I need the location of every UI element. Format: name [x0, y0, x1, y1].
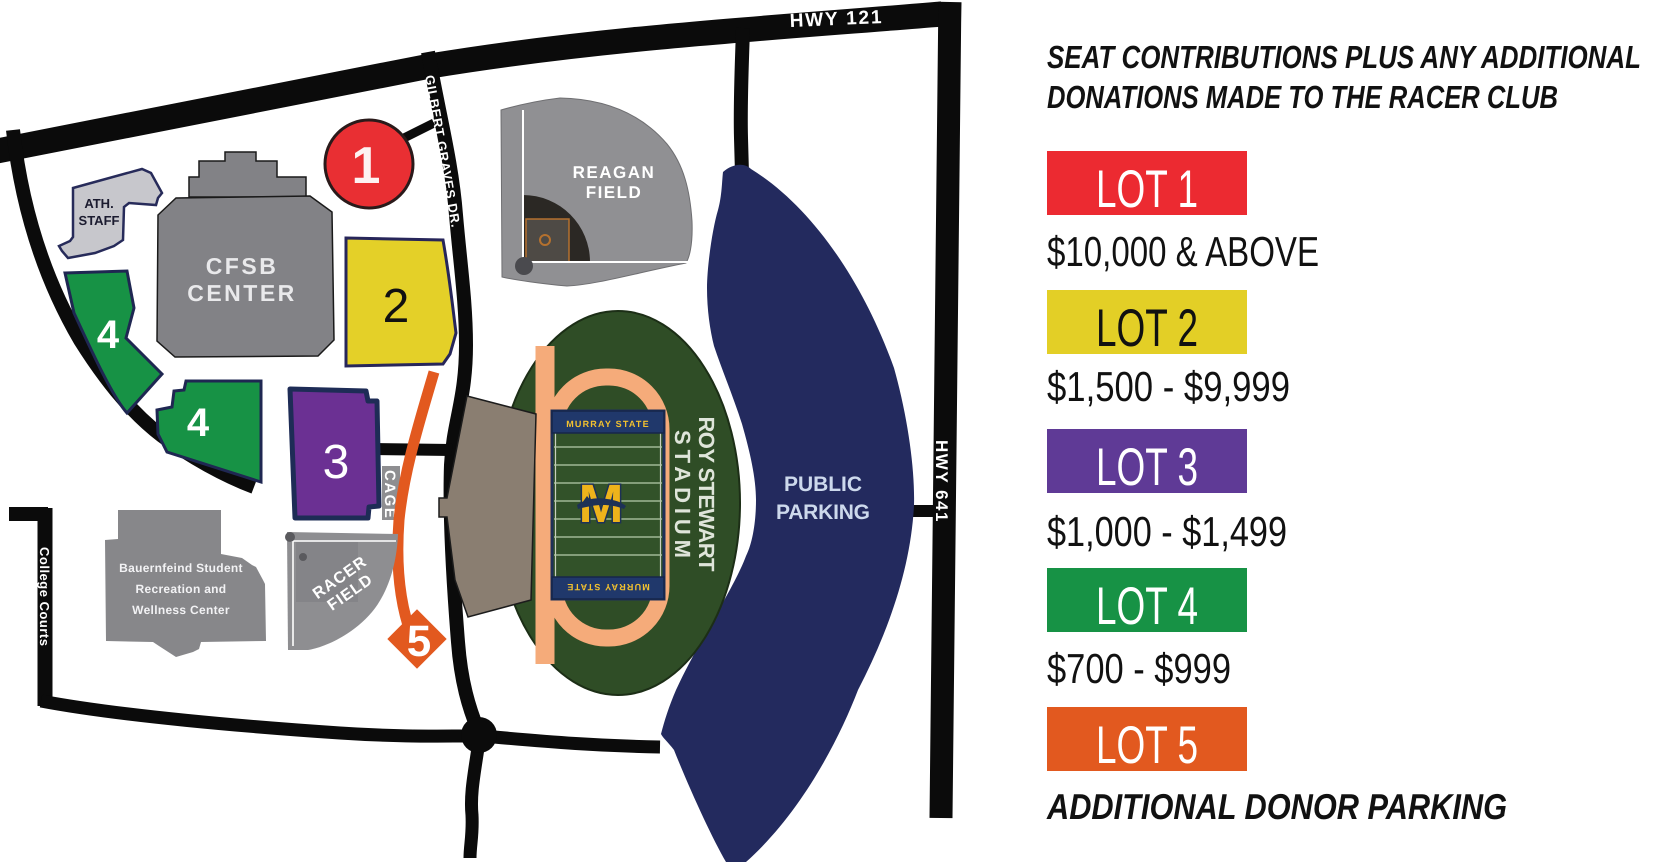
svg-text:$10,000 & ABOVE: $10,000 & ABOVE [1047, 228, 1319, 275]
svg-text:College Courts: College Courts [37, 547, 52, 646]
svg-text:ROY STEWART: ROY STEWART [694, 417, 719, 573]
svg-text:ATH.: ATH. [84, 196, 113, 211]
svg-text:ADDITIONAL DONOR PARKING: ADDITIONAL DONOR PARKING [1046, 786, 1507, 827]
svg-text:Wellness Center: Wellness Center [132, 603, 230, 617]
svg-text:PUBLIC: PUBLIC [784, 473, 862, 496]
svg-text:DONATIONS MADE TO THE RACER CL: DONATIONS MADE TO THE RACER CLUB [1047, 79, 1558, 115]
svg-text:LOT 2: LOT 2 [1096, 299, 1198, 358]
svg-text:STADIUM: STADIUM [670, 430, 695, 558]
svg-text:2: 2 [383, 280, 410, 333]
svg-text:LOT 4: LOT 4 [1096, 577, 1198, 636]
svg-text:REAGAN: REAGAN [573, 163, 656, 182]
svg-text:FIELD: FIELD [586, 183, 643, 202]
svg-text:MURRAY STATE: MURRAY STATE [566, 582, 650, 592]
svg-text:Bauernfeind Student: Bauernfeind Student [119, 561, 243, 575]
svg-text:MURRAY STATE: MURRAY STATE [566, 419, 650, 429]
svg-text:STAFF: STAFF [79, 213, 120, 228]
svg-text:PARKING: PARKING [776, 501, 870, 524]
svg-text:LOT 1: LOT 1 [1096, 160, 1198, 219]
svg-text:HWY 121: HWY 121 [789, 7, 883, 32]
svg-text:$1,000 - $1,499: $1,000 - $1,499 [1047, 508, 1287, 555]
svg-text:$700 - $999: $700 - $999 [1047, 645, 1231, 692]
svg-text:SEAT CONTRIBUTIONS PLUS ANY AD: SEAT CONTRIBUTIONS PLUS ANY ADDITIONAL [1047, 39, 1641, 75]
svg-text:4: 4 [97, 313, 120, 357]
svg-text:3: 3 [323, 436, 350, 489]
svg-text:1: 1 [352, 137, 381, 195]
svg-text:$1,500 - $9,999: $1,500 - $9,999 [1047, 363, 1290, 410]
svg-text:Recreation and: Recreation and [136, 582, 227, 596]
svg-text:CENTER: CENTER [187, 280, 297, 306]
svg-text:LOT 5: LOT 5 [1096, 716, 1198, 775]
svg-text:LOT 3: LOT 3 [1096, 438, 1198, 497]
svg-text:4: 4 [187, 401, 210, 445]
svg-text:CFSB: CFSB [206, 253, 279, 279]
svg-text:5: 5 [407, 617, 431, 666]
svg-text:HWY 641: HWY 641 [932, 440, 951, 523]
